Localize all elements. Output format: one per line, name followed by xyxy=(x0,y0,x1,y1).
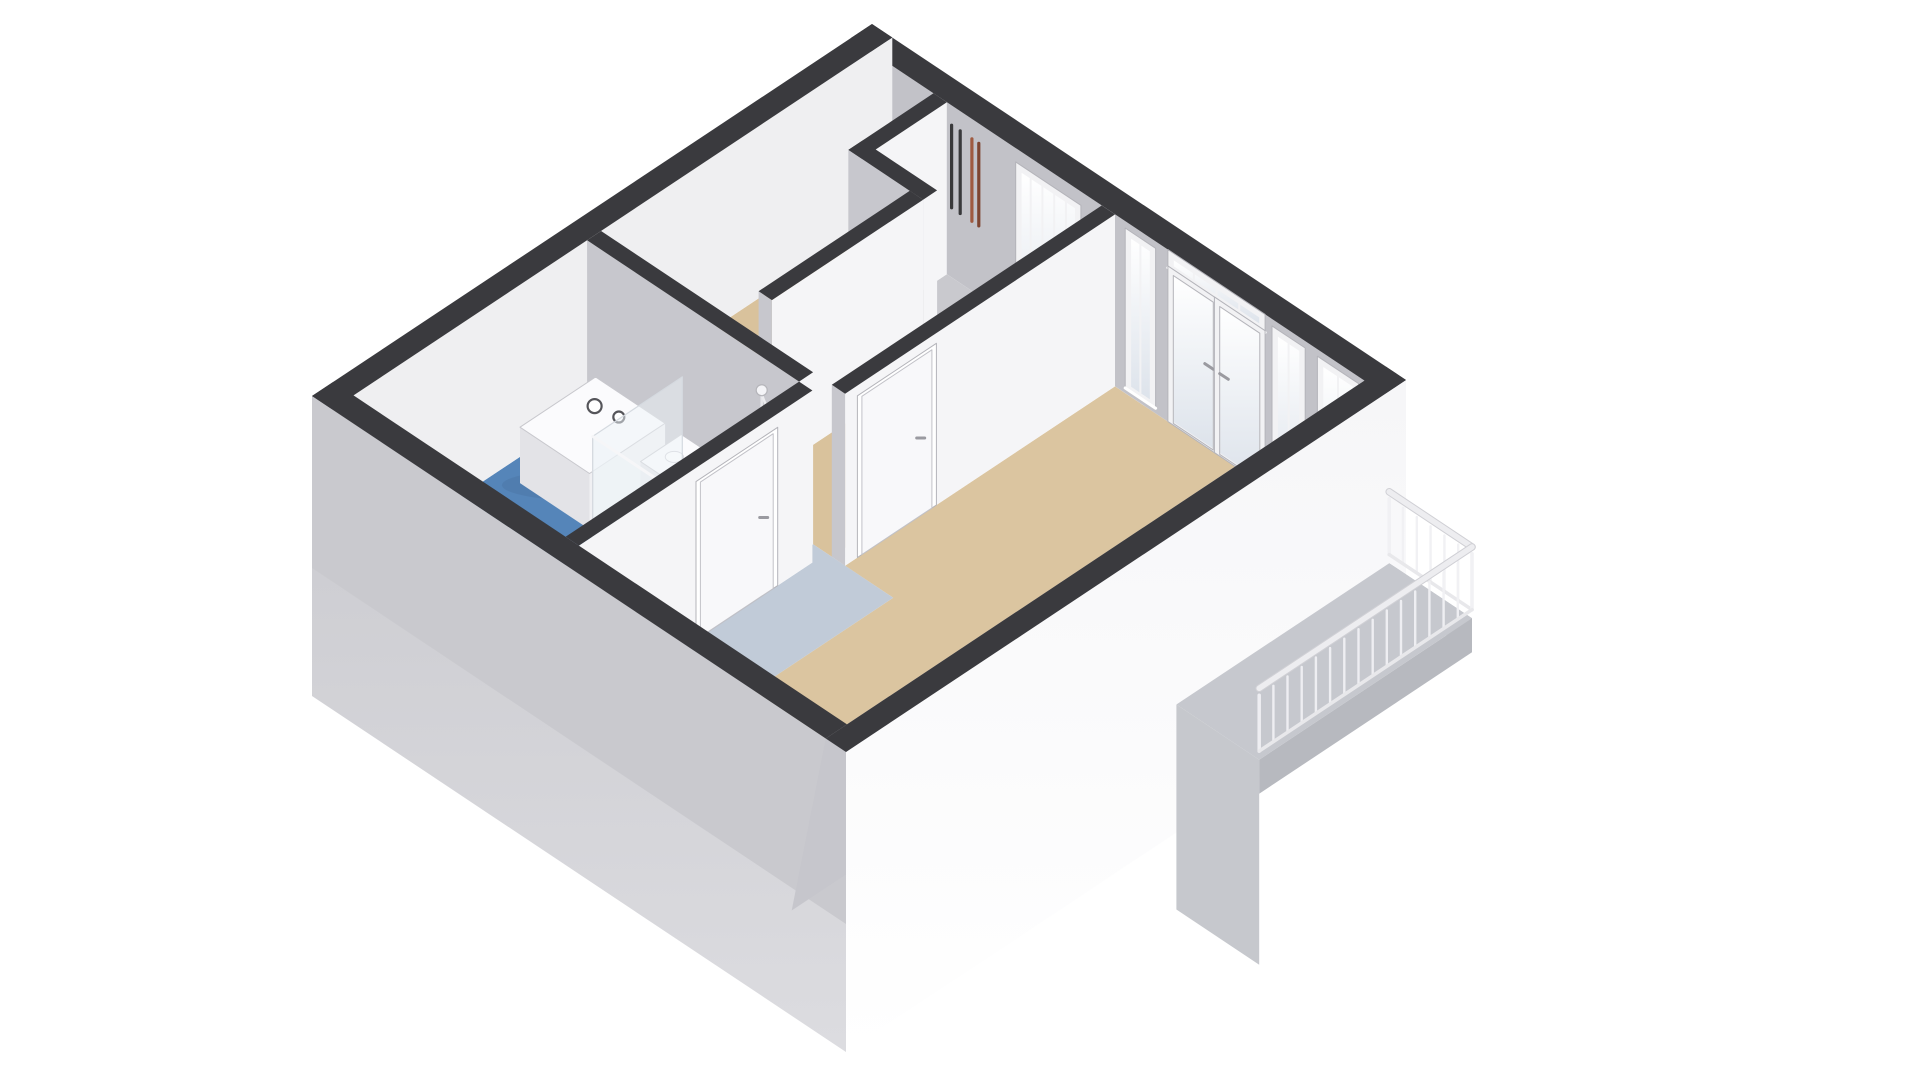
floorplan-3d-render xyxy=(0,0,1920,1080)
floorplan-stage xyxy=(0,0,1920,1080)
shower-head-icon xyxy=(756,385,767,396)
wall-corridor-se-face-sw xyxy=(832,385,845,566)
french-door-left-glass xyxy=(1174,277,1213,448)
french-door-right-glass xyxy=(1220,308,1259,479)
washing-machine-knob xyxy=(588,399,602,413)
